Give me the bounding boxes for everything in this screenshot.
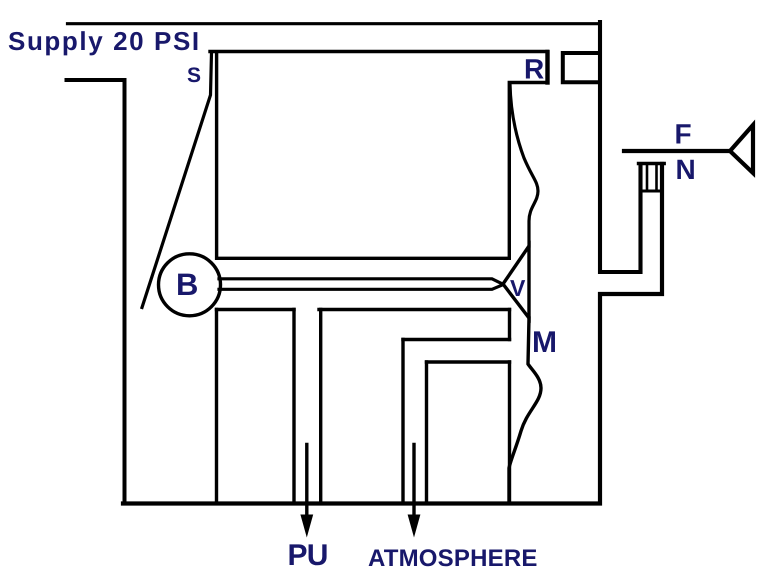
svg-text:N: N xyxy=(676,154,696,185)
svg-text:R: R xyxy=(524,54,544,85)
svg-text:Supply 20 PSI: Supply 20 PSI xyxy=(8,26,201,56)
svg-text:V: V xyxy=(510,275,526,301)
svg-text:F: F xyxy=(675,119,692,150)
svg-text:PU: PU xyxy=(288,539,328,572)
svg-text:S: S xyxy=(187,64,201,87)
svg-text:B: B xyxy=(176,267,198,302)
svg-text:ATMOSPHERE: ATMOSPHERE xyxy=(368,545,538,572)
svg-text:M: M xyxy=(532,326,557,359)
